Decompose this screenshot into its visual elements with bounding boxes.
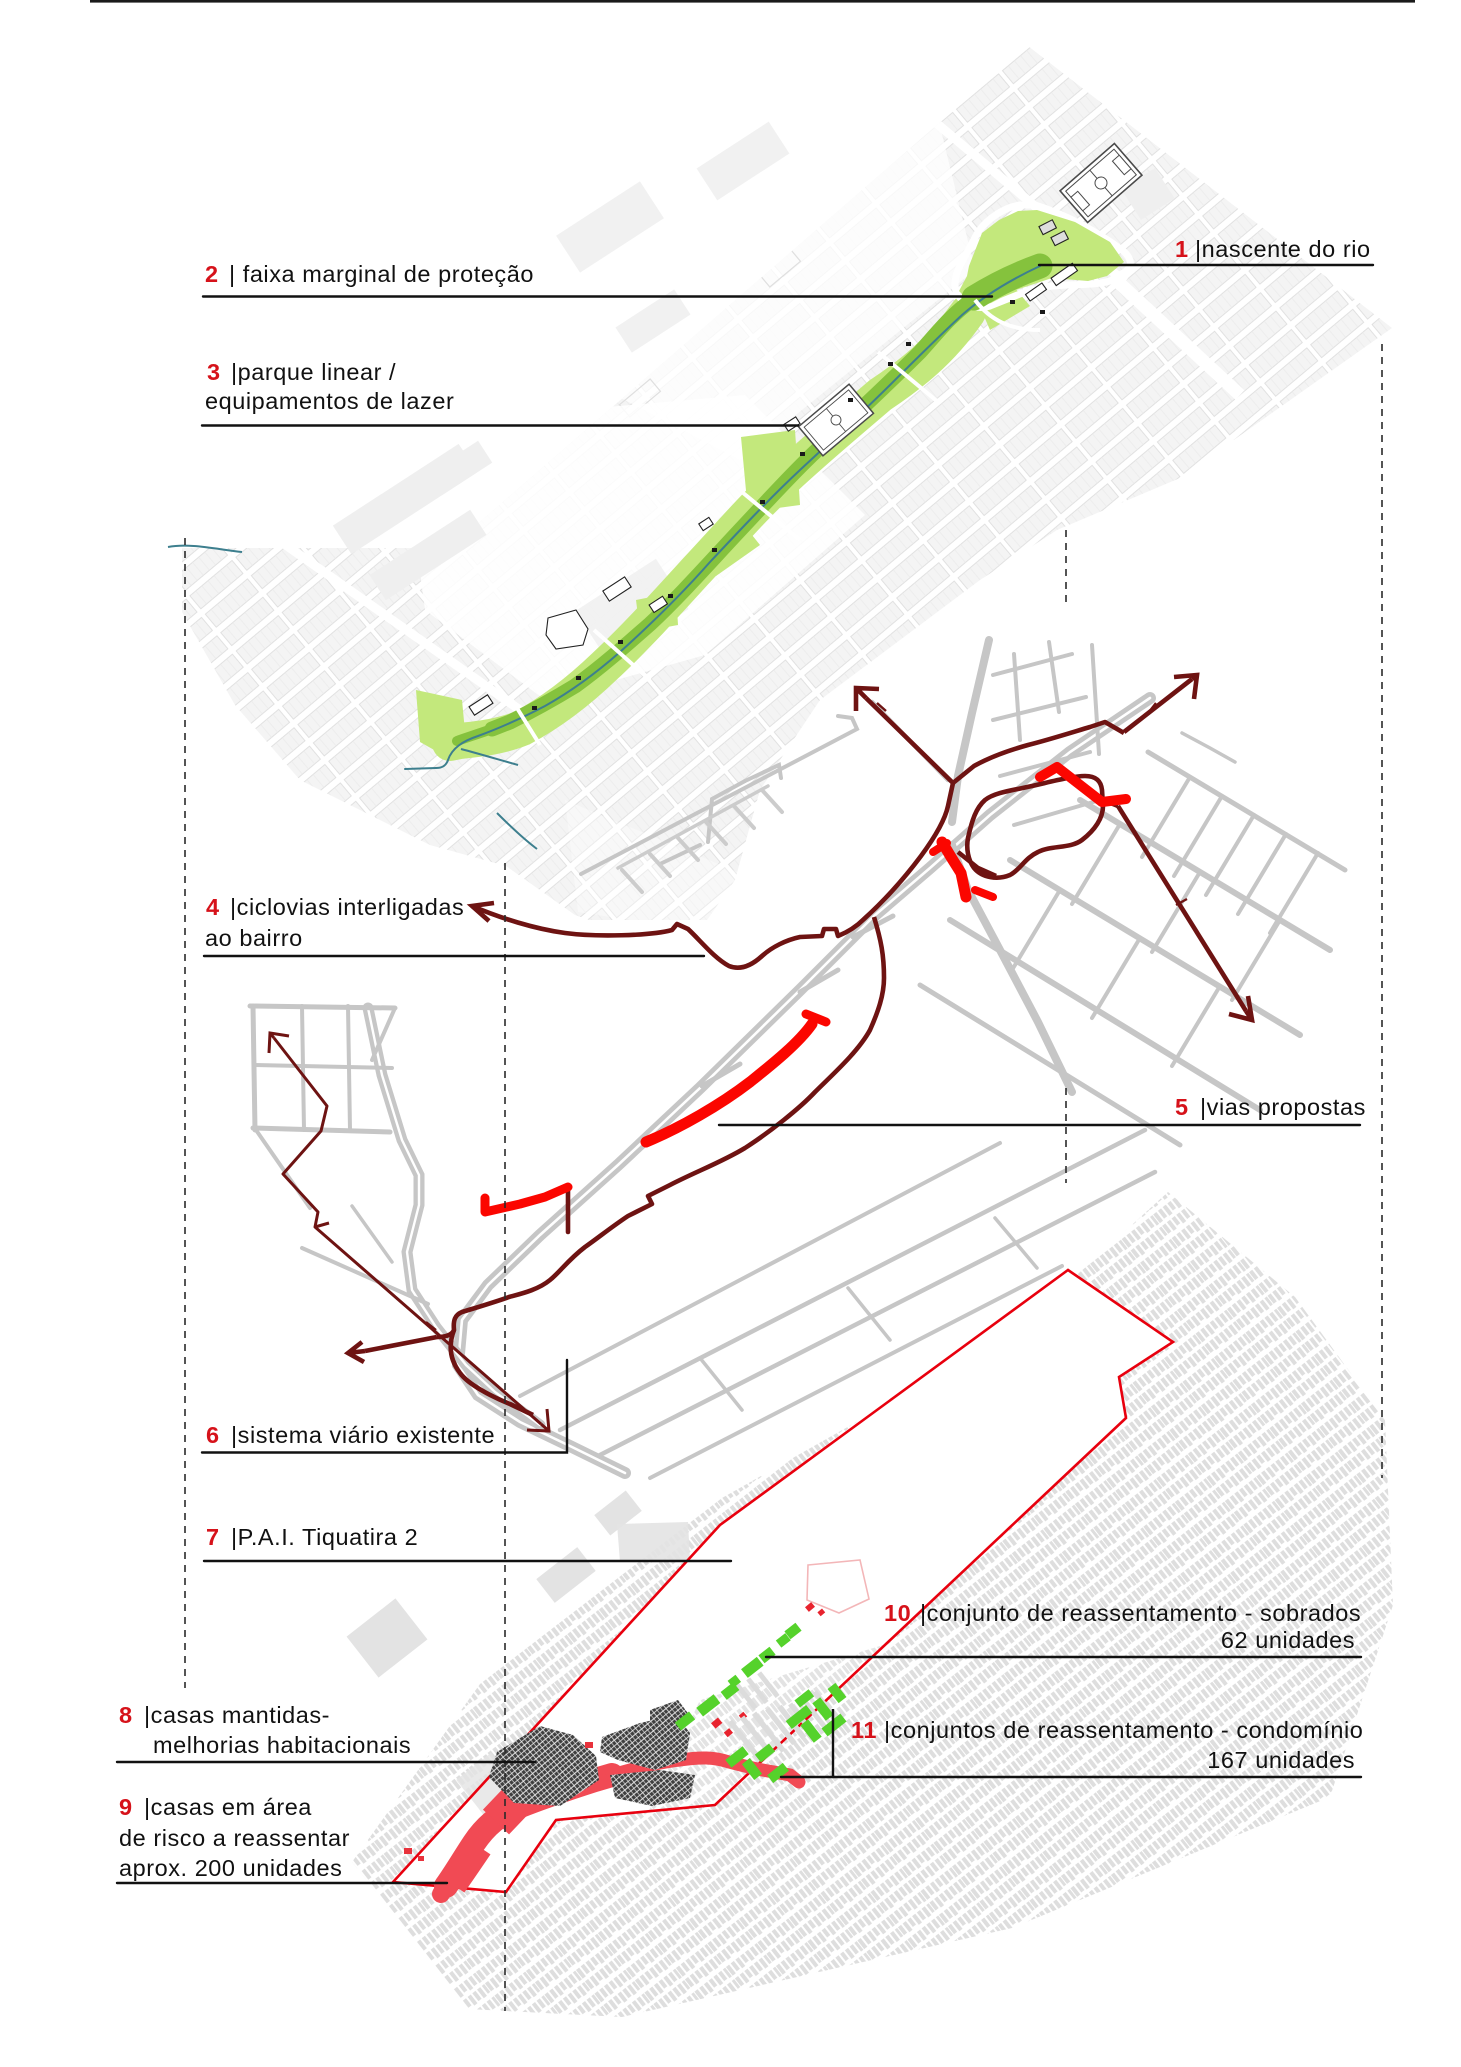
svg-text:|casas em área: |casas em área (144, 1794, 312, 1820)
svg-text:62 unidades: 62 unidades (1221, 1627, 1355, 1653)
svg-text:167 unidades: 167 unidades (1207, 1747, 1355, 1773)
svg-text:aprox. 200 unidades: aprox. 200 unidades (119, 1855, 342, 1881)
svg-text:|conjunto de reassentamento -: |conjunto de reassentamento - sobrados (920, 1600, 1361, 1626)
svg-text:equipamentos de lazer: equipamentos de lazer (205, 388, 454, 414)
svg-text:|casas mantidas-: |casas mantidas- (144, 1702, 330, 1728)
svg-text:melhorias habitacionais: melhorias habitacionais (153, 1732, 411, 1758)
svg-text:| faixa marginal de proteção: | faixa marginal de proteção (229, 261, 534, 287)
svg-text:|ciclovias interligadas: |ciclovias interligadas (230, 894, 464, 920)
svg-text:|nascente do rio: |nascente do rio (1195, 236, 1371, 262)
svg-text:9: 9 (119, 1794, 133, 1820)
svg-text:3: 3 (207, 359, 221, 385)
svg-text:7: 7 (206, 1524, 220, 1550)
svg-text:|conjuntos de reassentamento -: |conjuntos de reassentamento - condomíni… (884, 1717, 1363, 1743)
svg-text:10: 10 (884, 1600, 911, 1626)
svg-text:4: 4 (206, 894, 220, 920)
svg-text:|vias propostas: |vias propostas (1200, 1094, 1366, 1120)
svg-text:8: 8 (119, 1702, 133, 1728)
svg-text:11: 11 (851, 1717, 877, 1743)
svg-text:6: 6 (206, 1422, 220, 1448)
svg-text:1: 1 (1175, 236, 1189, 262)
svg-text:|parque linear /: |parque linear / (231, 359, 396, 385)
svg-text:5: 5 (1175, 1094, 1189, 1120)
svg-text:|P.A.I. Tiquatira 2: |P.A.I. Tiquatira 2 (231, 1524, 418, 1550)
svg-text:2: 2 (205, 261, 219, 287)
svg-text:de risco a reassentar: de risco a reassentar (119, 1825, 350, 1851)
svg-text:|sistema viário existente: |sistema viário existente (231, 1422, 495, 1448)
svg-text:ao bairro: ao bairro (205, 925, 303, 951)
